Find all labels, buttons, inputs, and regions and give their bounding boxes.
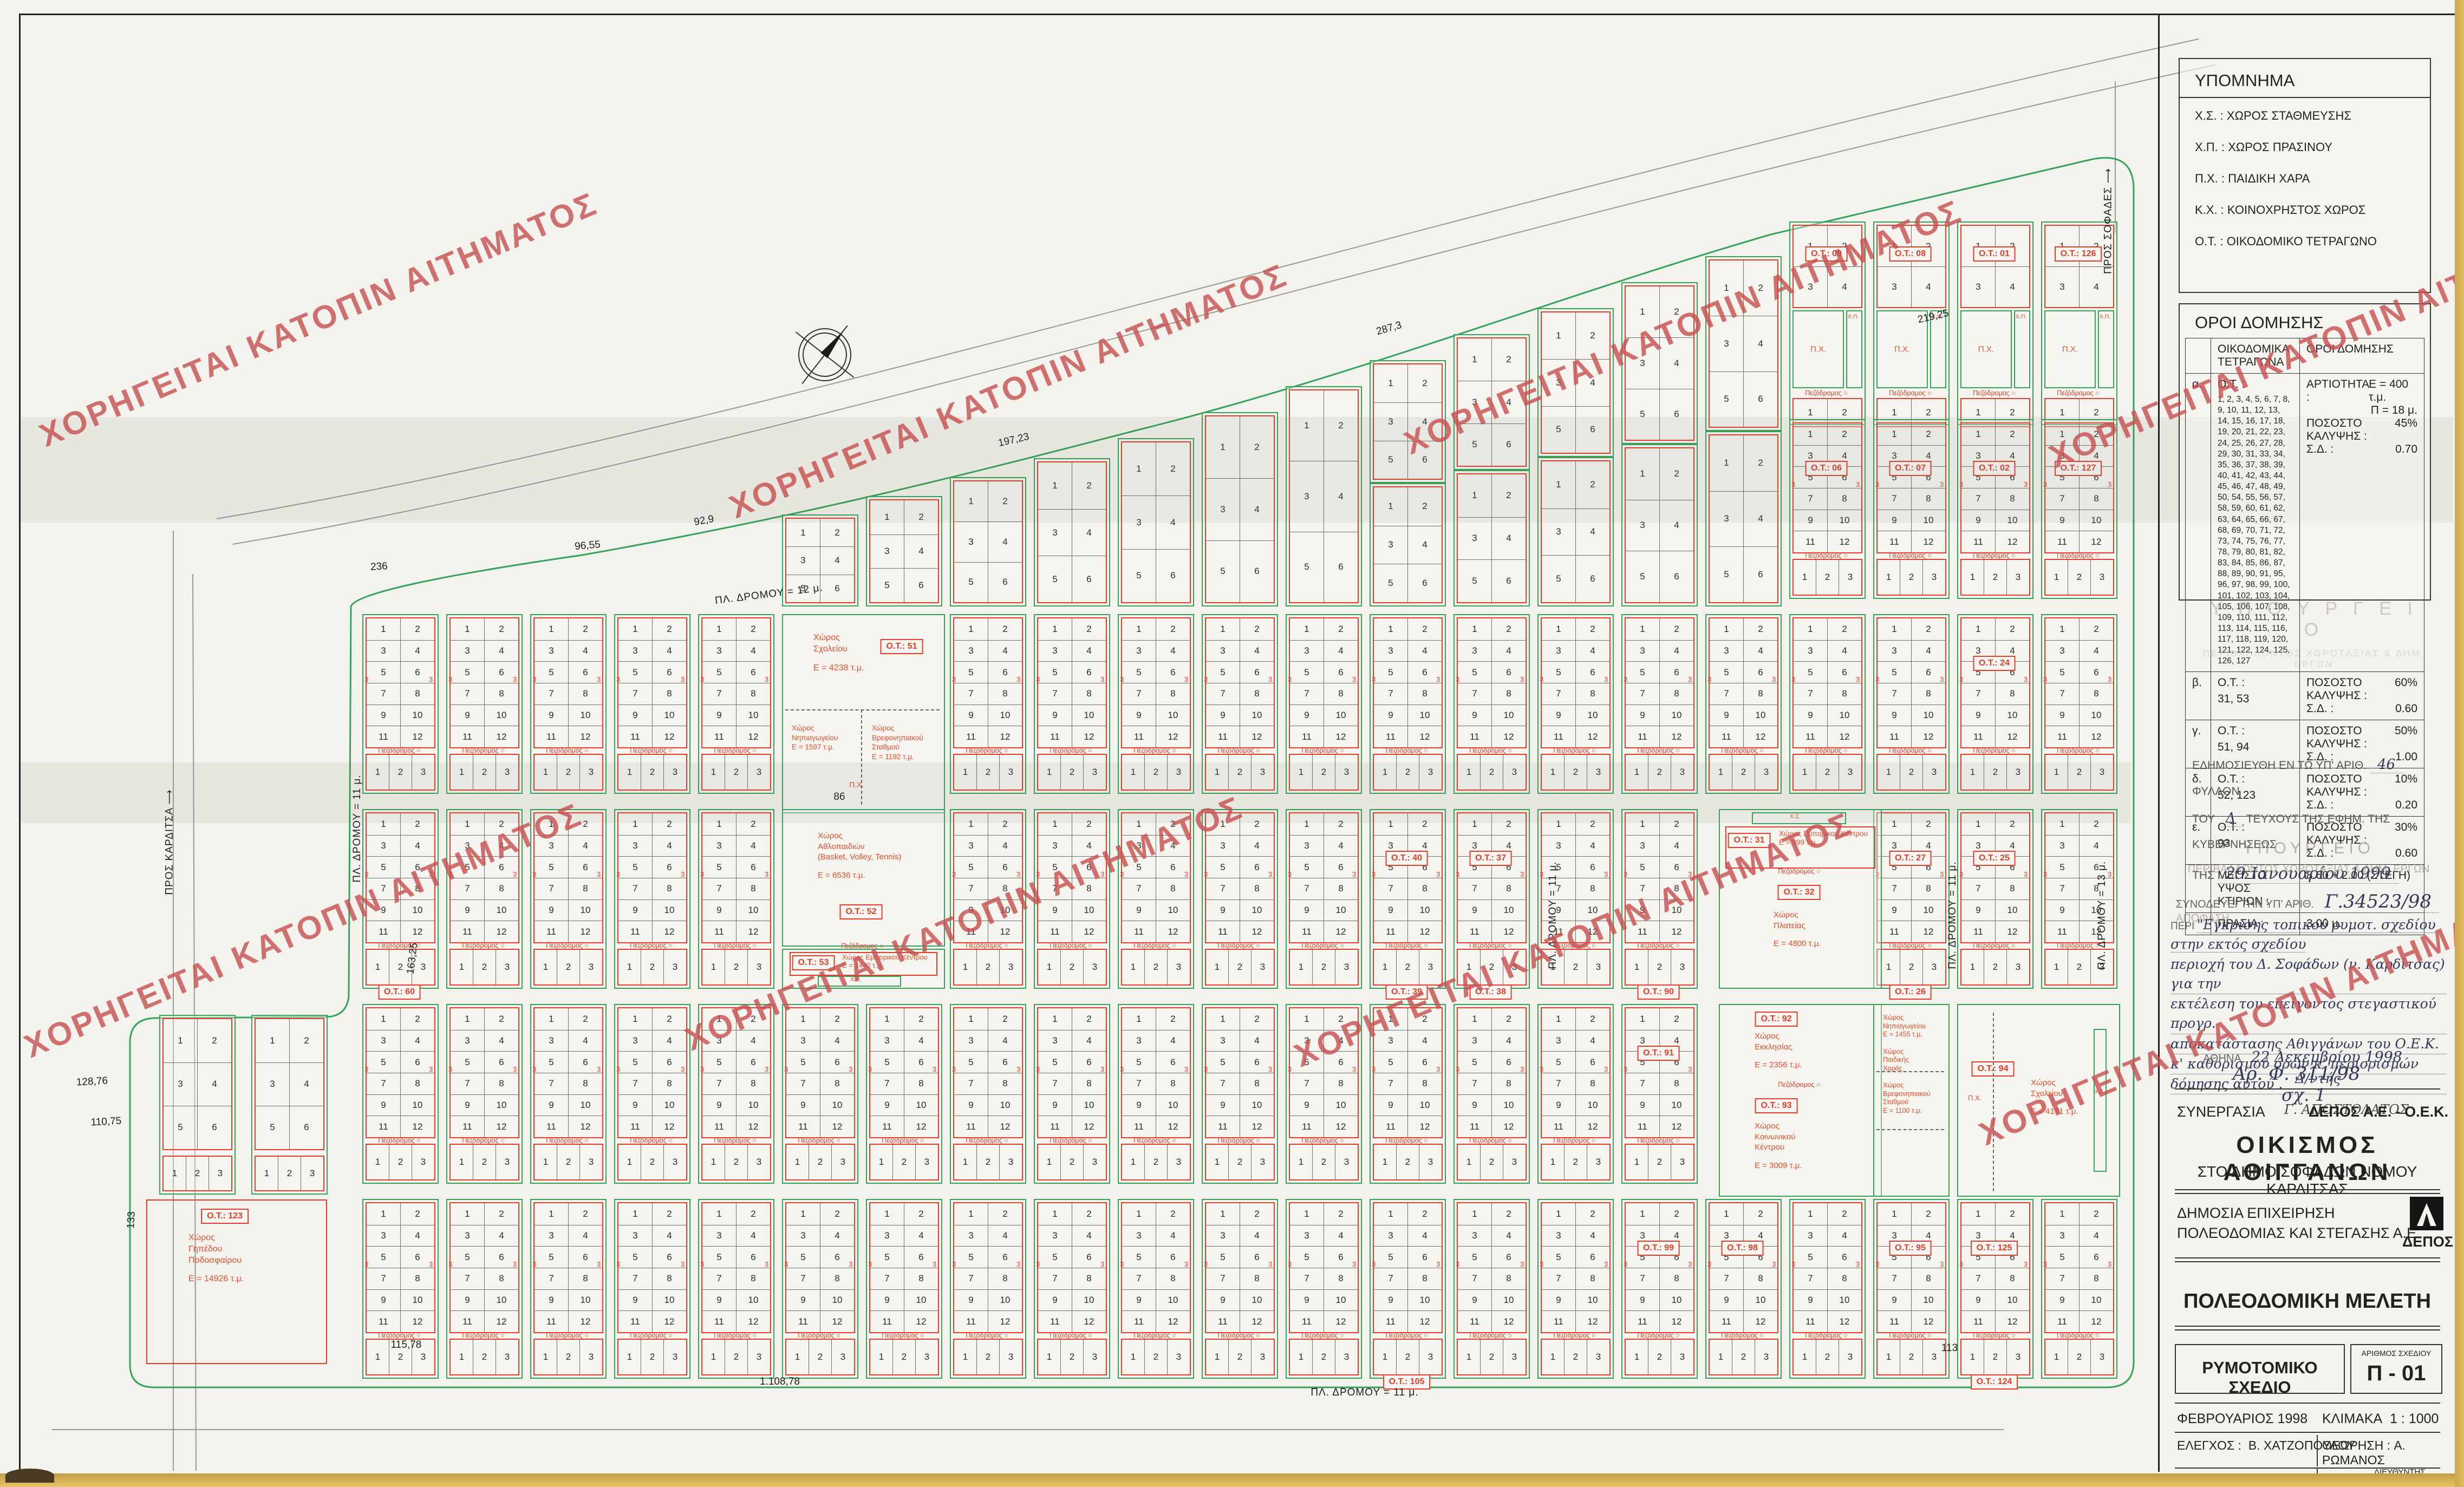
parcel: 3 xyxy=(702,835,736,857)
parcel-row: 56 xyxy=(1290,1246,1358,1268)
small-block: 123 xyxy=(1876,1339,1946,1375)
parcel: 2 xyxy=(1732,1340,1755,1374)
parcel: 12 xyxy=(736,726,770,747)
parcel: 1 xyxy=(1122,1340,1144,1374)
parcel: 2 xyxy=(1995,618,2029,640)
parcel-row: 34 xyxy=(1542,1225,1609,1247)
building-block: 123456789101112 xyxy=(2044,617,2114,748)
small-block: 123 xyxy=(1037,754,1107,791)
parcel: 11 xyxy=(1122,921,1156,942)
special-area-label: ΧώροςΑθλοπαιδιών(Basket, Volley, Tennis)… xyxy=(818,831,902,881)
parcel-row: 1112 xyxy=(1626,726,1693,747)
parcel-row: 123 xyxy=(534,1145,602,1179)
parcel: 2 xyxy=(1984,950,2006,984)
parcel-row: 910 xyxy=(2045,1289,2113,1311)
parcel-row: 34 xyxy=(451,640,518,662)
small-block: 123 xyxy=(617,1339,687,1375)
parcel-row: 56 xyxy=(1038,1246,1106,1268)
parcel: 2 xyxy=(389,755,412,790)
parcel: 3 xyxy=(786,546,820,574)
parcel-row: 910 xyxy=(786,1289,854,1311)
parcel-row: 34 xyxy=(1206,835,1274,857)
parcel: 8 xyxy=(1072,878,1106,899)
prasia-mark: 3 xyxy=(597,1065,601,1073)
pedestrian-street-label: Πεζόδρομος ○ xyxy=(1037,1332,1105,1339)
parcel: 10 xyxy=(1911,705,1945,726)
parcel-row: 34 xyxy=(870,1225,938,1247)
pedestrian-street-label: Πεζόδρομος ○ xyxy=(1457,1332,1524,1339)
small-block: 123 xyxy=(1289,1144,1359,1181)
parcel-row: 12 xyxy=(954,481,1022,521)
parcel: 10 xyxy=(568,705,602,726)
parcel: 1 xyxy=(1038,1203,1072,1225)
pedestrian-street-label: Πεζόδρομος ○ xyxy=(1625,1332,1692,1339)
building-block: 123456789101112 xyxy=(1037,1202,1107,1333)
parcel-row: 1112 xyxy=(618,726,686,747)
parcel-row: 1112 xyxy=(1122,921,1190,942)
parcel-row: 12 xyxy=(1038,618,1106,640)
parcel: 10 xyxy=(1240,1289,1274,1311)
parcel: 2 xyxy=(568,618,602,640)
parcel: 11 xyxy=(1122,726,1156,747)
parcel-row: 56 xyxy=(1794,1246,1861,1268)
parcel-row: 12 xyxy=(1206,813,1274,835)
parcel: 1 xyxy=(451,1008,484,1030)
block-number-box: Ο.Τ.: 25 xyxy=(1973,851,2016,866)
small-block: 123 xyxy=(533,1144,603,1181)
parcel: 1 xyxy=(1710,1203,1743,1225)
check-label: ΕΛΕΓΧΟΣ : xyxy=(2177,1438,2241,1452)
parcel: 4 xyxy=(400,640,434,662)
parcel: 10 xyxy=(1659,1094,1693,1116)
parcel-row: 78 xyxy=(786,1073,854,1094)
parcel: 11 xyxy=(702,726,736,747)
parcel: 3 xyxy=(2045,835,2079,857)
parcel: 3 xyxy=(451,1030,484,1052)
pedestrian-street-label: Πεζόδρομος ○ xyxy=(1876,552,1944,559)
parcel-row: 123 xyxy=(1878,755,1945,790)
parcel: 2 xyxy=(1564,1145,1587,1179)
parcel: 7 xyxy=(1794,1268,1827,1289)
parcel: 4 xyxy=(1156,640,1190,662)
parcel: 12 xyxy=(484,1310,518,1332)
dimension-label: 86 xyxy=(833,791,845,803)
parcel: 5 xyxy=(451,661,484,683)
parcel-row: 12 xyxy=(1794,423,1861,445)
parcel: 2 xyxy=(1144,1340,1167,1374)
parcel-row: 910 xyxy=(1374,705,1442,726)
parcel: 10 xyxy=(1995,1289,2029,1311)
parcel: 11 xyxy=(1122,1310,1156,1332)
parcel: 7 xyxy=(1122,1268,1156,1289)
parcel: 3 xyxy=(1961,266,1995,307)
prasia-mark: 3 xyxy=(1772,1260,1776,1268)
parcel-row: 34 xyxy=(954,835,1022,857)
parcel-row: 1112 xyxy=(1122,726,1190,747)
building-block: 123456789101112 xyxy=(1457,617,1527,748)
parcel-row: 56 xyxy=(1290,532,1358,602)
parcel: 3 xyxy=(915,1340,938,1374)
parcel: 3 xyxy=(1794,1225,1827,1247)
parcel-row: 56 xyxy=(451,661,518,683)
building-block: 123456789101112 xyxy=(1289,812,1359,943)
parcel: 4 xyxy=(1743,491,1777,547)
parcel-row: 12 xyxy=(954,1203,1022,1225)
parcel: 5 xyxy=(1206,1051,1240,1073)
parcel: 1 xyxy=(618,618,652,640)
building-block: 123456 xyxy=(1289,389,1359,603)
prasia-mark: 3 xyxy=(1540,1065,1543,1073)
parcel-row: 34 xyxy=(1122,640,1190,662)
parcel: 9 xyxy=(1374,705,1407,726)
parcel-row: 78 xyxy=(954,683,1022,705)
parcel: 3 xyxy=(496,1145,518,1179)
parcel: 5 xyxy=(1458,559,1491,602)
drawing-number-box: ΑΡΙΘΜΟΣ ΣΧΕΔΙΟΥ Π - 01 xyxy=(2350,1344,2442,1394)
parcel-row: 1112 xyxy=(1961,921,2029,942)
parcel: 11 xyxy=(954,1116,988,1137)
parcel: 2 xyxy=(641,1145,663,1179)
parcel: 8 xyxy=(400,1268,434,1289)
parcel: 1 xyxy=(1794,423,1827,445)
small-block: 123 xyxy=(366,754,435,791)
parcel-row: 56 xyxy=(534,1051,602,1073)
parcel: 7 xyxy=(1038,1268,1072,1289)
parcel: 7 xyxy=(1122,683,1156,705)
parcel: 9 xyxy=(1794,510,1827,531)
parcel: 1 xyxy=(870,500,904,534)
parcel: 11 xyxy=(702,1116,736,1137)
parcel: 2 xyxy=(1564,1340,1587,1374)
parcel-row: 12 xyxy=(1122,618,1190,640)
parcel: 2 xyxy=(1396,950,1419,984)
parcel-row: 78 xyxy=(1794,1268,1861,1289)
parcel-row: 123 xyxy=(618,1145,686,1179)
parcel-row: 56 xyxy=(1710,546,1777,602)
block-number-box: Ο.Τ.: 37 xyxy=(1469,851,1512,866)
parcel-row: 1112 xyxy=(702,726,770,747)
parcel-row: 56 xyxy=(1710,661,1777,683)
building-block: 123456 xyxy=(1457,473,1527,603)
parcel: 4 xyxy=(1324,835,1358,857)
parcel: 2 xyxy=(400,618,434,640)
building-block: 123456789101112 xyxy=(617,1007,687,1138)
pedestrian-street-label: Πεζόδρομος ○ xyxy=(1722,1081,1876,1088)
parcel: 8 xyxy=(1156,878,1190,899)
parcel: 3 xyxy=(1290,1225,1324,1247)
parcel: 6 xyxy=(1156,549,1190,602)
parcel: 2 xyxy=(892,1340,915,1374)
parcel: 11 xyxy=(1206,921,1240,942)
parcel: 11 xyxy=(1374,726,1407,747)
parcel: 4 xyxy=(400,1030,434,1052)
prasia-mark: 3 xyxy=(1456,1260,1459,1268)
parcel-row: 34 xyxy=(1374,1030,1442,1052)
small-block: 123 xyxy=(1709,754,1778,791)
parcel: 9 xyxy=(1038,899,1072,921)
parcel: 3 xyxy=(1922,950,1945,984)
parcel: 1 xyxy=(451,1145,473,1179)
parcel-row: 12 xyxy=(1878,618,1945,640)
scale-label: ΚΛΙΜΑΚΑ xyxy=(2322,1411,2382,1426)
parcel-row: 123 xyxy=(1878,950,1945,984)
parcel: 10 xyxy=(1156,899,1190,921)
parcel: 7 xyxy=(1626,1268,1659,1289)
pedestrian-street-label: Πεζόδρομος ○ xyxy=(2044,389,2112,397)
parcel: 4 xyxy=(1575,1030,1609,1052)
parcel: 3 xyxy=(954,640,988,662)
small-block: 123 xyxy=(1625,754,1694,791)
parcel: 10 xyxy=(1240,705,1274,726)
parcel: 1 xyxy=(1878,423,1911,445)
parcel-row: 910 xyxy=(1122,705,1190,726)
parcel: 4 xyxy=(1827,266,1861,307)
building-block: 123456789101112 xyxy=(701,617,771,748)
parcel: 10 xyxy=(484,899,518,921)
parcel-row: 910 xyxy=(618,1289,686,1311)
parcel-row: 34 xyxy=(1542,1030,1609,1052)
parcel: 5 xyxy=(702,856,736,878)
parcel-row: 910 xyxy=(1206,1289,1274,1311)
parcel: 7 xyxy=(1626,878,1659,899)
parcel-row: 56 xyxy=(367,1246,434,1268)
parcel: 2 xyxy=(1575,1203,1609,1225)
parcel: 2 xyxy=(1984,1340,2006,1374)
parcel: 2 xyxy=(1407,1008,1442,1030)
parcel: 2 xyxy=(988,1203,1022,1225)
block-number-box: Ο.Τ.: 95 xyxy=(1889,1241,1932,1256)
prasia-mark: 3 xyxy=(2024,675,2028,683)
parcel: 7 xyxy=(1374,1268,1407,1289)
parcel: 9 xyxy=(954,1289,988,1311)
parcel: 10 xyxy=(652,1094,686,1116)
parcel: 1 xyxy=(1122,1145,1144,1179)
parcel-row: 910 xyxy=(534,1289,602,1311)
parcel: 1 xyxy=(954,618,988,640)
parcel-row: 56 xyxy=(618,661,686,683)
parcel-row: 1112 xyxy=(1458,1116,1526,1137)
prasia-mark: 3 xyxy=(532,870,536,878)
small-block: 123 xyxy=(953,754,1023,791)
parcel-row: 34 xyxy=(1626,500,1693,551)
parcel-row: 56 xyxy=(1626,551,1693,602)
parcel: 1 xyxy=(1626,1145,1648,1179)
parcel-row: 1112 xyxy=(1290,726,1358,747)
parcel: 1 xyxy=(1542,813,1575,835)
parcel: 1 xyxy=(1038,755,1060,790)
parcel: 1 xyxy=(1122,1203,1156,1225)
building-block: 123456789101112 xyxy=(1457,812,1527,943)
building-block: 123456789101112 xyxy=(1960,422,2030,553)
parcel-row: 78 xyxy=(1961,683,2029,705)
prasia-mark: 3 xyxy=(1100,675,1104,683)
parcel-row: 1112 xyxy=(1038,1116,1106,1137)
parcel-row: 12 xyxy=(256,1019,323,1062)
pedestrian-street-label: Πεζόδρομος ○ xyxy=(366,942,433,949)
parcel-row: 12 xyxy=(1374,1203,1442,1225)
parcel: 5 xyxy=(1038,1051,1072,1073)
parcel: 3 xyxy=(1542,835,1575,857)
small-block: 123 xyxy=(1625,949,1694,986)
parcel-row: 1112 xyxy=(1794,726,1861,747)
parcel: 2 xyxy=(652,1203,686,1225)
parcel-row: 78 xyxy=(1626,683,1693,705)
parcel: 2 xyxy=(1743,618,1777,640)
parcel: 4 xyxy=(1407,402,1442,440)
parcel-row: 78 xyxy=(1626,878,1693,899)
parcel: 1 xyxy=(451,813,484,835)
building-block: 123456789101112 xyxy=(1625,1007,1694,1138)
building-block: 123456789101112 xyxy=(533,812,603,943)
building-block: 123456789101112 xyxy=(1625,1202,1694,1333)
parcel: 3 xyxy=(534,835,568,857)
parcel: 9 xyxy=(1458,705,1491,726)
parcel-row: 34 xyxy=(1122,495,1190,549)
parcel: 3 xyxy=(954,1225,988,1247)
parcel: 3 xyxy=(412,1145,434,1179)
parcel: 7 xyxy=(451,1073,484,1094)
parcel-row: 56 xyxy=(618,1246,686,1268)
small-block: 123 xyxy=(2044,559,2114,596)
small-block: 123 xyxy=(617,754,687,791)
parcel: 3 xyxy=(2006,755,2029,790)
parcel-row: 78 xyxy=(954,1268,1022,1289)
small-block: 123 xyxy=(1289,754,1359,791)
parcel-row: 1112 xyxy=(1710,1310,1777,1332)
pedestrian-street-label: Πεζόδρομος ○ xyxy=(869,1332,937,1339)
parcel: 1 xyxy=(367,1145,389,1179)
parcel: 2 xyxy=(1659,1008,1693,1030)
green-strip-label: Χ.Π. xyxy=(2016,314,2026,321)
parcel-row: 78 xyxy=(618,878,686,899)
parcel-row: 123 xyxy=(702,1340,770,1374)
parcel-row: 12 xyxy=(1542,1203,1609,1225)
parcel: 1 xyxy=(1290,1340,1312,1374)
prasia-mark: 3 xyxy=(681,870,685,878)
pedestrian-street-label: Πεζόδρομος ○ xyxy=(1037,747,1105,754)
parcel: 2 xyxy=(2079,813,2113,835)
parcel: 2 xyxy=(1324,1203,1358,1225)
parcel: 9 xyxy=(534,899,568,921)
parcel: 2 xyxy=(1659,1203,1693,1225)
parcel-row: 12 xyxy=(1290,390,1358,461)
parcel: 9 xyxy=(1038,1094,1072,1116)
block-number-box: Ο.Τ.: 09 xyxy=(1805,246,1848,262)
parcel: 1 xyxy=(534,950,557,984)
parcel: 9 xyxy=(1961,1289,1995,1311)
building-block: 123456 xyxy=(953,480,1023,603)
small-block: 123 xyxy=(1205,1339,1275,1375)
legend-box: ΥΠΟΜΝΗΜΑ Χ.Σ. : ΧΩΡΟΣ ΣΤΑΘΜΕΥΣΗΣΧ.Π. : Χ… xyxy=(2179,58,2431,293)
small-block: 123 xyxy=(1625,1144,1694,1181)
block-number-box: Ο.Τ.: 40 xyxy=(1385,851,1428,866)
parcel: 9 xyxy=(1290,899,1324,921)
pedestrian-street-label: Πεζόδρομος ○ xyxy=(617,747,685,754)
parcel: 2 xyxy=(976,1145,999,1179)
parcel: 3 xyxy=(1206,1030,1240,1052)
special-area-label: ΧώροςΝηπιαγωγείουΕ = 1597 τ.μ. xyxy=(792,723,838,752)
parcel: 3 xyxy=(1878,266,1911,307)
small-block: 123 xyxy=(1541,1144,1611,1181)
prasia-mark: 3 xyxy=(1100,870,1104,878)
parcel: 9 xyxy=(870,1094,904,1116)
parcel: 2 xyxy=(1491,618,1526,640)
parcel-row: 910 xyxy=(618,705,686,726)
parcel-row: 12 xyxy=(1458,1008,1526,1030)
parcel: 3 xyxy=(1122,640,1156,662)
parcel-row: 1112 xyxy=(702,921,770,942)
small-block: 123 xyxy=(1541,1339,1611,1375)
building-block: 123456 xyxy=(162,1018,232,1150)
parcel-row: 34 xyxy=(1794,266,1861,307)
parcel-row: 12 xyxy=(1710,435,1777,491)
parcel: 9 xyxy=(618,1094,652,1116)
building-block: 123456 xyxy=(1541,460,1611,603)
parcel-row: 12 xyxy=(1878,813,1945,835)
building-block: 123456 xyxy=(1205,415,1275,603)
pedestrian-street-label: Πεζόδρομος ○ xyxy=(785,1137,853,1144)
parcel-row: 56 xyxy=(954,1246,1022,1268)
parcel: 5 xyxy=(1038,661,1072,683)
parcel-row: 1112 xyxy=(1878,726,1945,747)
parcel-row: 12 xyxy=(2045,1203,2113,1225)
parcel: 3 xyxy=(1794,640,1827,662)
parcel: 2 xyxy=(1240,1203,1274,1225)
parcel: 3 xyxy=(579,755,602,790)
dimension-label: 115,78 xyxy=(391,1339,422,1351)
parcel-row: 56 xyxy=(1542,661,1609,683)
parcel: 8 xyxy=(1659,1073,1693,1094)
parcel: 12 xyxy=(1324,1116,1358,1137)
parcel-row: 12 xyxy=(702,813,770,835)
small-block: 123 xyxy=(617,949,687,986)
parcel-row: 12 xyxy=(1374,618,1442,640)
parcel: 5 xyxy=(618,661,652,683)
parcel: 4 xyxy=(1156,1225,1190,1247)
parcel-row: 78 xyxy=(367,1073,434,1094)
parcel: 9 xyxy=(1290,1289,1324,1311)
building-block: 123456789101112 xyxy=(1876,1202,1946,1333)
parcel: 10 xyxy=(1491,1289,1526,1311)
parcel-row: 78 xyxy=(2045,683,2113,705)
pedestrian-street-label: Πεζόδρομος ○ xyxy=(701,942,769,949)
parcel-row: 78 xyxy=(618,683,686,705)
parcel-row: 56 xyxy=(702,1051,770,1073)
parcel: 3 xyxy=(1419,1145,1442,1179)
parcel: 12 xyxy=(1491,1116,1526,1137)
parcel-row: 34 xyxy=(2045,835,2113,857)
parcel-row: 123 xyxy=(1542,1145,1609,1179)
parcel: 10 xyxy=(1491,705,1526,726)
parcel: 1 xyxy=(702,618,736,640)
parcel-row: 12 xyxy=(1710,1203,1777,1225)
prasia-mark: 3 xyxy=(1520,675,1524,683)
dimension-label: 133 xyxy=(125,1211,138,1229)
building-block: 123456789101112 xyxy=(2044,1202,2114,1333)
parcel: 9 xyxy=(367,899,400,921)
prasia-mark: 3 xyxy=(765,870,768,878)
parcel: 10 xyxy=(2079,510,2113,531)
prasia-mark: 3 xyxy=(1120,1065,1124,1073)
parcel: 10 xyxy=(484,705,518,726)
building-block: 123456789101112 xyxy=(785,1202,855,1333)
parcel: 4 xyxy=(484,1030,518,1052)
parcel: 1 xyxy=(1458,813,1491,835)
prasia-mark: 3 xyxy=(1456,1065,1459,1073)
parcel-row: 78 xyxy=(954,1073,1022,1094)
building-block: 123456789101112 xyxy=(1289,1007,1359,1138)
parcel: 2 xyxy=(1072,1203,1106,1225)
